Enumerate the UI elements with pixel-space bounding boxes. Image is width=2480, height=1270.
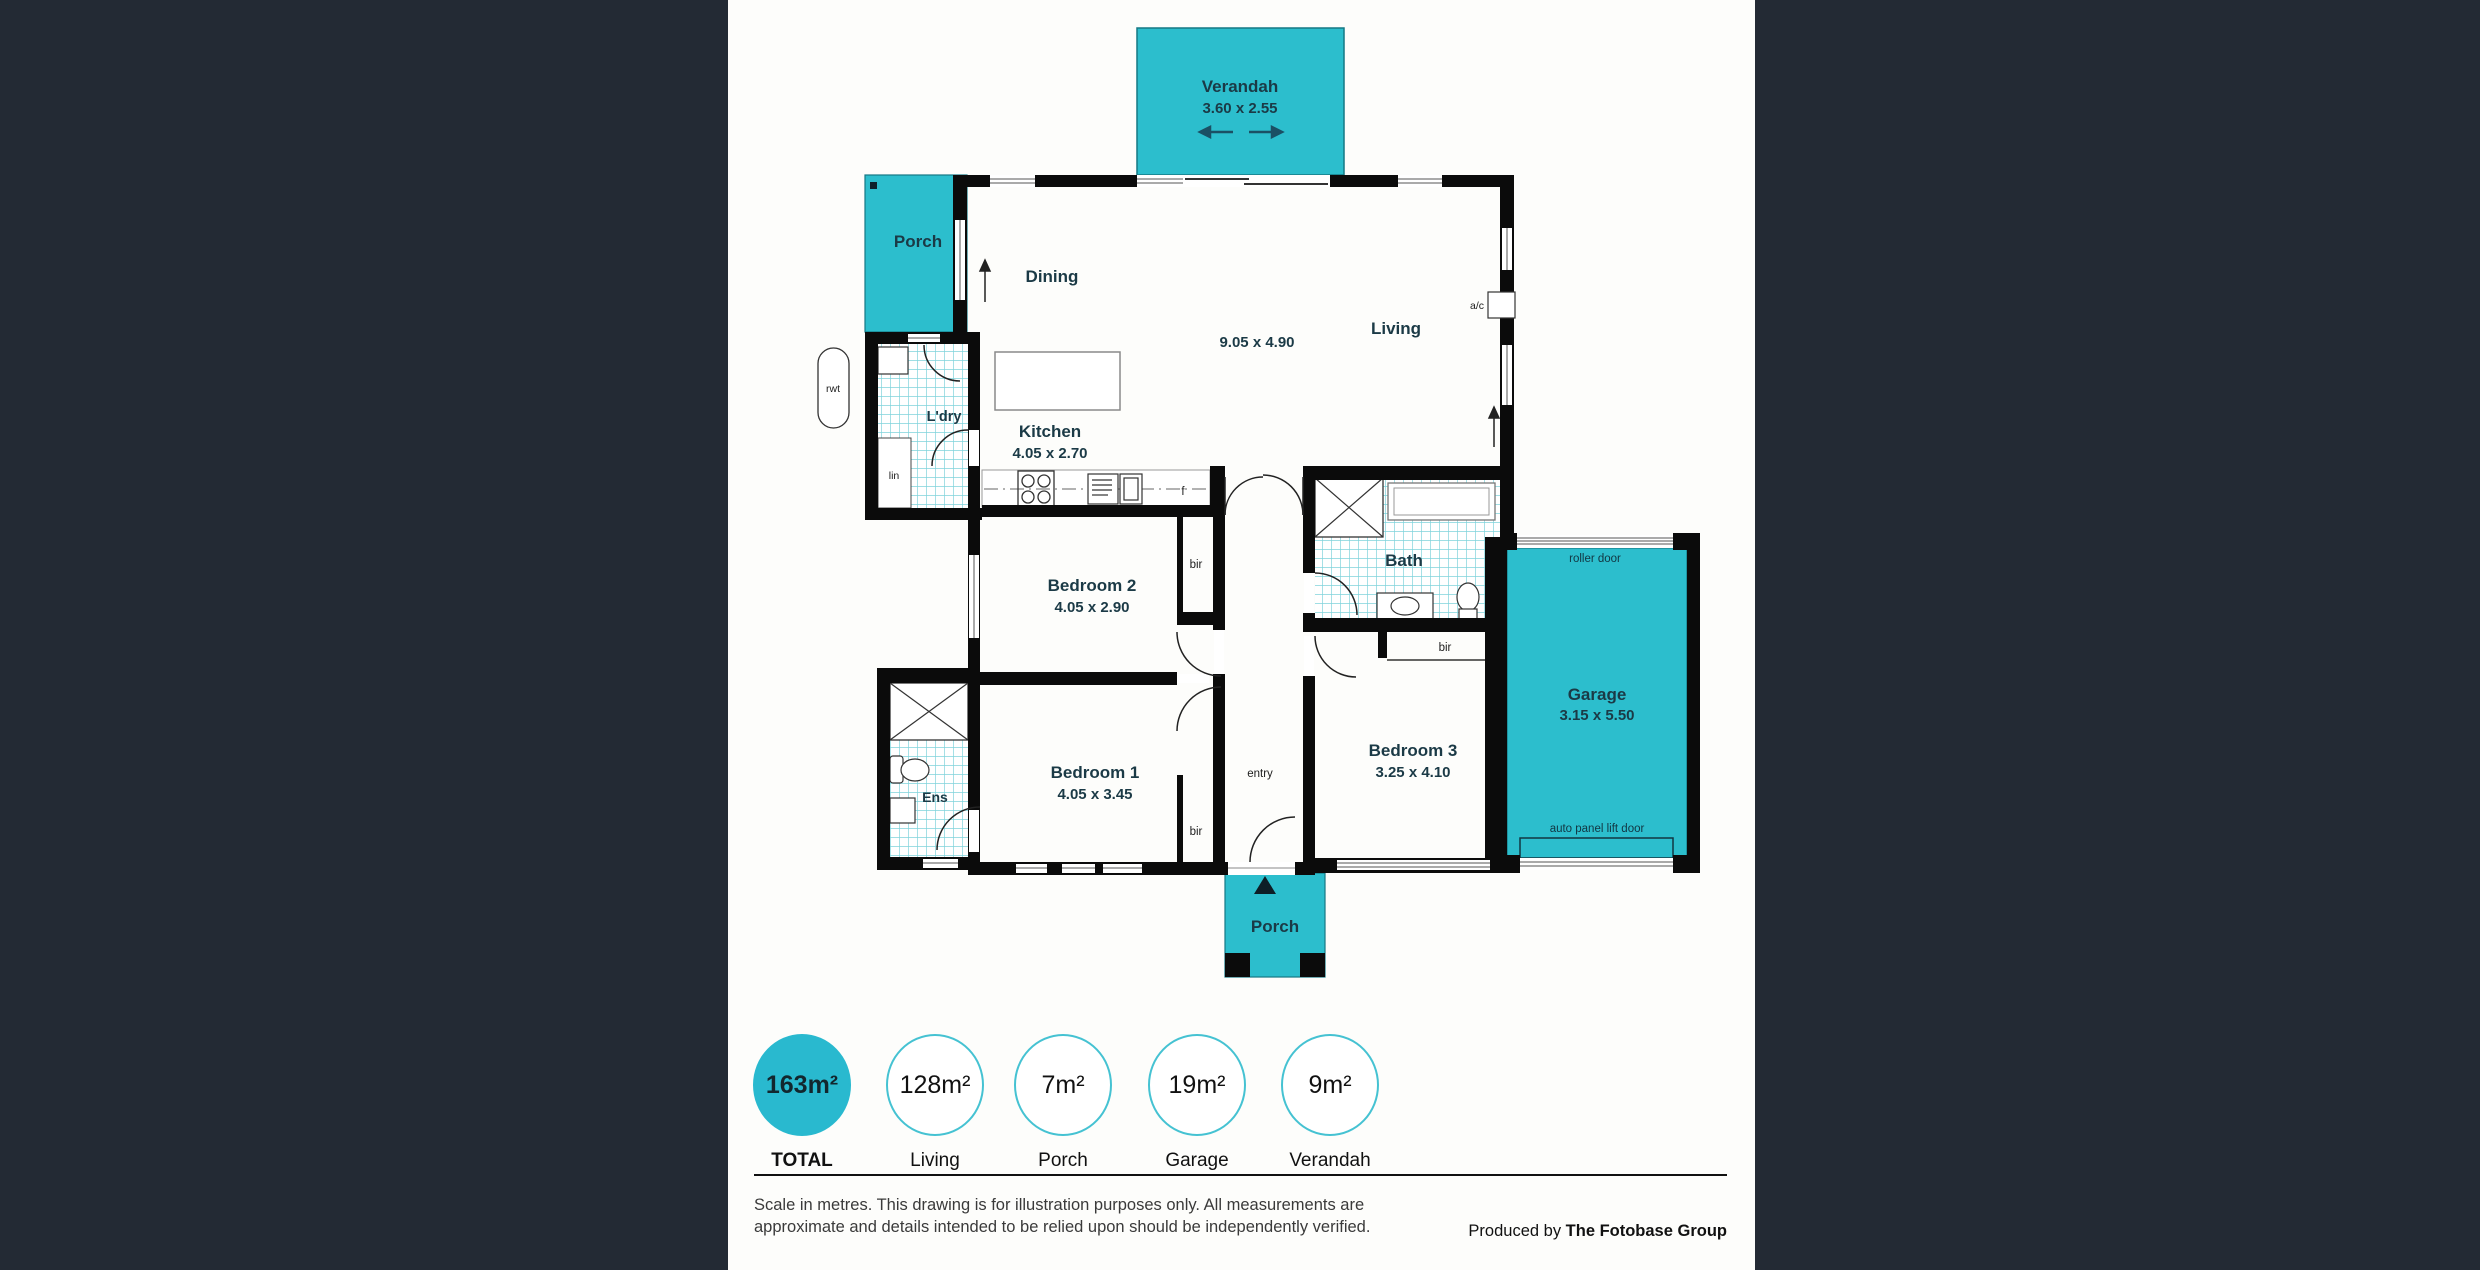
stat-total-value: 163m²: [766, 1071, 838, 1100]
porch-top-area: [865, 175, 967, 332]
stat-garage-circle: 19m²: [1148, 1034, 1246, 1136]
bedroom3-dims: 3.25 x 4.10: [1375, 764, 1450, 781]
ensuite-basin: [890, 798, 915, 823]
kitchen-dims: 4.05 x 2.70: [1012, 445, 1087, 462]
door-arcs: [924, 345, 1357, 862]
sliding-door: [1183, 175, 1330, 187]
stat-verandah-circle: 9m²: [1281, 1034, 1379, 1136]
porch-bottom-label: Porch: [1251, 917, 1299, 936]
ac-label: a/c: [1470, 300, 1484, 312]
roller-door-strip: [1517, 535, 1673, 548]
footer-divider: [754, 1174, 1727, 1176]
bath-shower: [1315, 478, 1383, 537]
stat-total: 163m² TOTAL: [753, 1034, 851, 1172]
garage-dims: 3.15 x 5.50: [1559, 707, 1634, 724]
bedroom3-bir-label: bir: [1439, 642, 1452, 654]
stat-verandah-value: 9m²: [1308, 1071, 1351, 1100]
kitchen-label: Kitchen: [1019, 422, 1081, 441]
porch-top-label: Porch: [894, 232, 942, 251]
laundry-label: L'dry: [927, 409, 962, 425]
stat-total-circle: 163m²: [753, 1034, 851, 1136]
auto-door-label: auto panel lift door: [1550, 823, 1645, 835]
stat-living-circle: 128m²: [886, 1034, 984, 1136]
kitchen-island: [995, 352, 1120, 410]
credit-prefix: Produced by: [1468, 1222, 1565, 1240]
entry-arrow-top: [980, 260, 990, 302]
bath-toilet: [1457, 583, 1479, 620]
bedroom1-dims: 4.05 x 3.45: [1057, 786, 1132, 803]
stat-garage-label: Garage: [1148, 1150, 1246, 1172]
stat-living-label: Living: [886, 1150, 984, 1172]
stat-porch: 7m² Porch: [1014, 1034, 1112, 1172]
kitchen-bench: [982, 470, 1210, 507]
stat-porch-value: 7m²: [1041, 1071, 1084, 1100]
stat-garage: 19m² Garage: [1148, 1034, 1246, 1172]
entry-label: entry: [1247, 768, 1273, 780]
dining-label: Dining: [1026, 267, 1079, 286]
bedroom1-label: Bedroom 1: [1051, 763, 1140, 782]
rwt-label: rwt: [826, 383, 840, 395]
bedroom3-label: Bedroom 3: [1369, 741, 1458, 760]
verandah-label: Verandah: [1202, 77, 1279, 96]
stat-total-label: TOTAL: [753, 1150, 851, 1172]
credit-brand: The Fotobase Group: [1566, 1222, 1727, 1240]
stat-verandah-label: Verandah: [1281, 1150, 1379, 1172]
bedroom2-label: Bedroom 2: [1048, 576, 1137, 595]
stat-verandah: 9m² Verandah: [1281, 1034, 1379, 1172]
ac-unit: [1488, 292, 1515, 318]
floorplan-panel: Verandah 3.60 x 2.55 Porch Dining 9.05 x…: [728, 0, 1755, 1270]
kitchen-sink: [1088, 474, 1142, 504]
stat-living-value: 128m²: [900, 1071, 971, 1100]
living-label: Living: [1371, 319, 1421, 338]
floorplan-page: Verandah 3.60 x 2.55 Porch Dining 9.05 x…: [0, 0, 2480, 1270]
open-plan-dims: 9.05 x 4.90: [1219, 334, 1294, 351]
stat-porch-label: Porch: [1014, 1150, 1112, 1172]
bedroom2-bir-label: bir: [1190, 559, 1203, 571]
floorplan-drawing: Verandah 3.60 x 2.55 Porch Dining 9.05 x…: [728, 0, 1755, 1010]
garage-door-panel: [1520, 838, 1673, 858]
laundry-trough: [878, 347, 908, 374]
porch-corner-post: [870, 182, 877, 189]
ensuite-shower: [890, 683, 968, 740]
bath-vanity: [1377, 593, 1433, 620]
stat-living: 128m² Living: [886, 1034, 984, 1172]
bath-label: Bath: [1385, 551, 1423, 570]
bathtub: [1388, 483, 1495, 520]
bedroom2-dims: 4.05 x 2.90: [1054, 599, 1129, 616]
ensuite-label: Ens: [922, 789, 948, 805]
roller-door-label: roller door: [1569, 553, 1621, 565]
linen-label: lin: [889, 470, 900, 482]
bedroom1-bir-label: bir: [1190, 826, 1203, 838]
stat-porch-circle: 7m²: [1014, 1034, 1112, 1136]
entry-arrow-right: [1489, 407, 1499, 447]
credit-text: Produced by The Fotobase Group: [1468, 1222, 1727, 1241]
stat-garage-value: 19m²: [1169, 1071, 1226, 1100]
disclaimer-text: Scale in metres. This drawing is for ill…: [754, 1194, 1394, 1239]
garage-label: Garage: [1568, 685, 1627, 704]
verandah-dims: 3.60 x 2.55: [1202, 100, 1277, 117]
